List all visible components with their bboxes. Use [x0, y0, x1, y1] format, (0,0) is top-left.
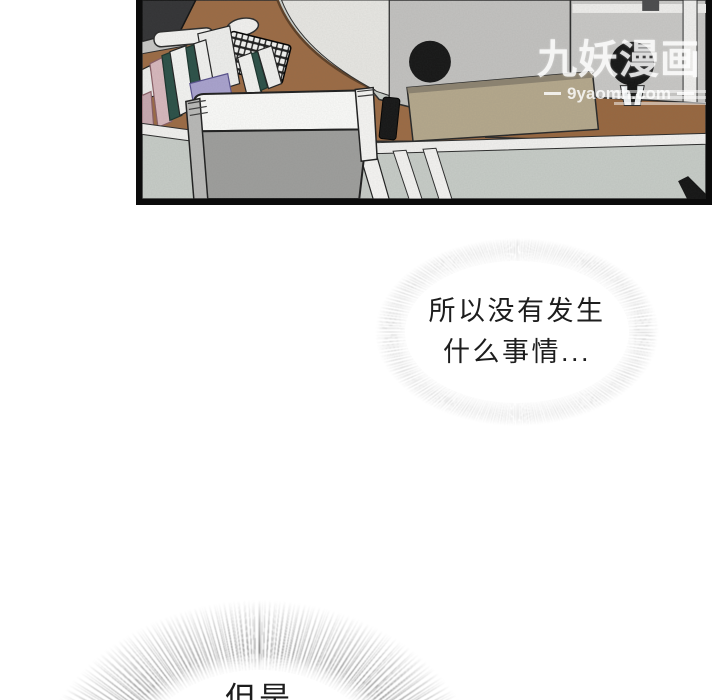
- speech-bubble-nothing-happened: 所以没有发生 什么事情...: [375, 238, 659, 426]
- bubble-body: 所以没有发生 什么事情...: [405, 261, 629, 404]
- bubble-line: 但是: [225, 680, 293, 700]
- bubble-line: 什么事情...: [443, 332, 591, 373]
- comic-page: 九妖漫画 9yaomh.com 所以没有发生 什么事情... 但是: [0, 0, 720, 700]
- comic-panel: 九妖漫画 9yaomh.com: [136, 0, 712, 205]
- office-scene-illustration: [142, 0, 706, 199]
- speckle-texture: [142, 0, 706, 199]
- speech-bubble-but: 但是: [26, 598, 492, 700]
- bubble-line: 所以没有发生: [429, 291, 606, 332]
